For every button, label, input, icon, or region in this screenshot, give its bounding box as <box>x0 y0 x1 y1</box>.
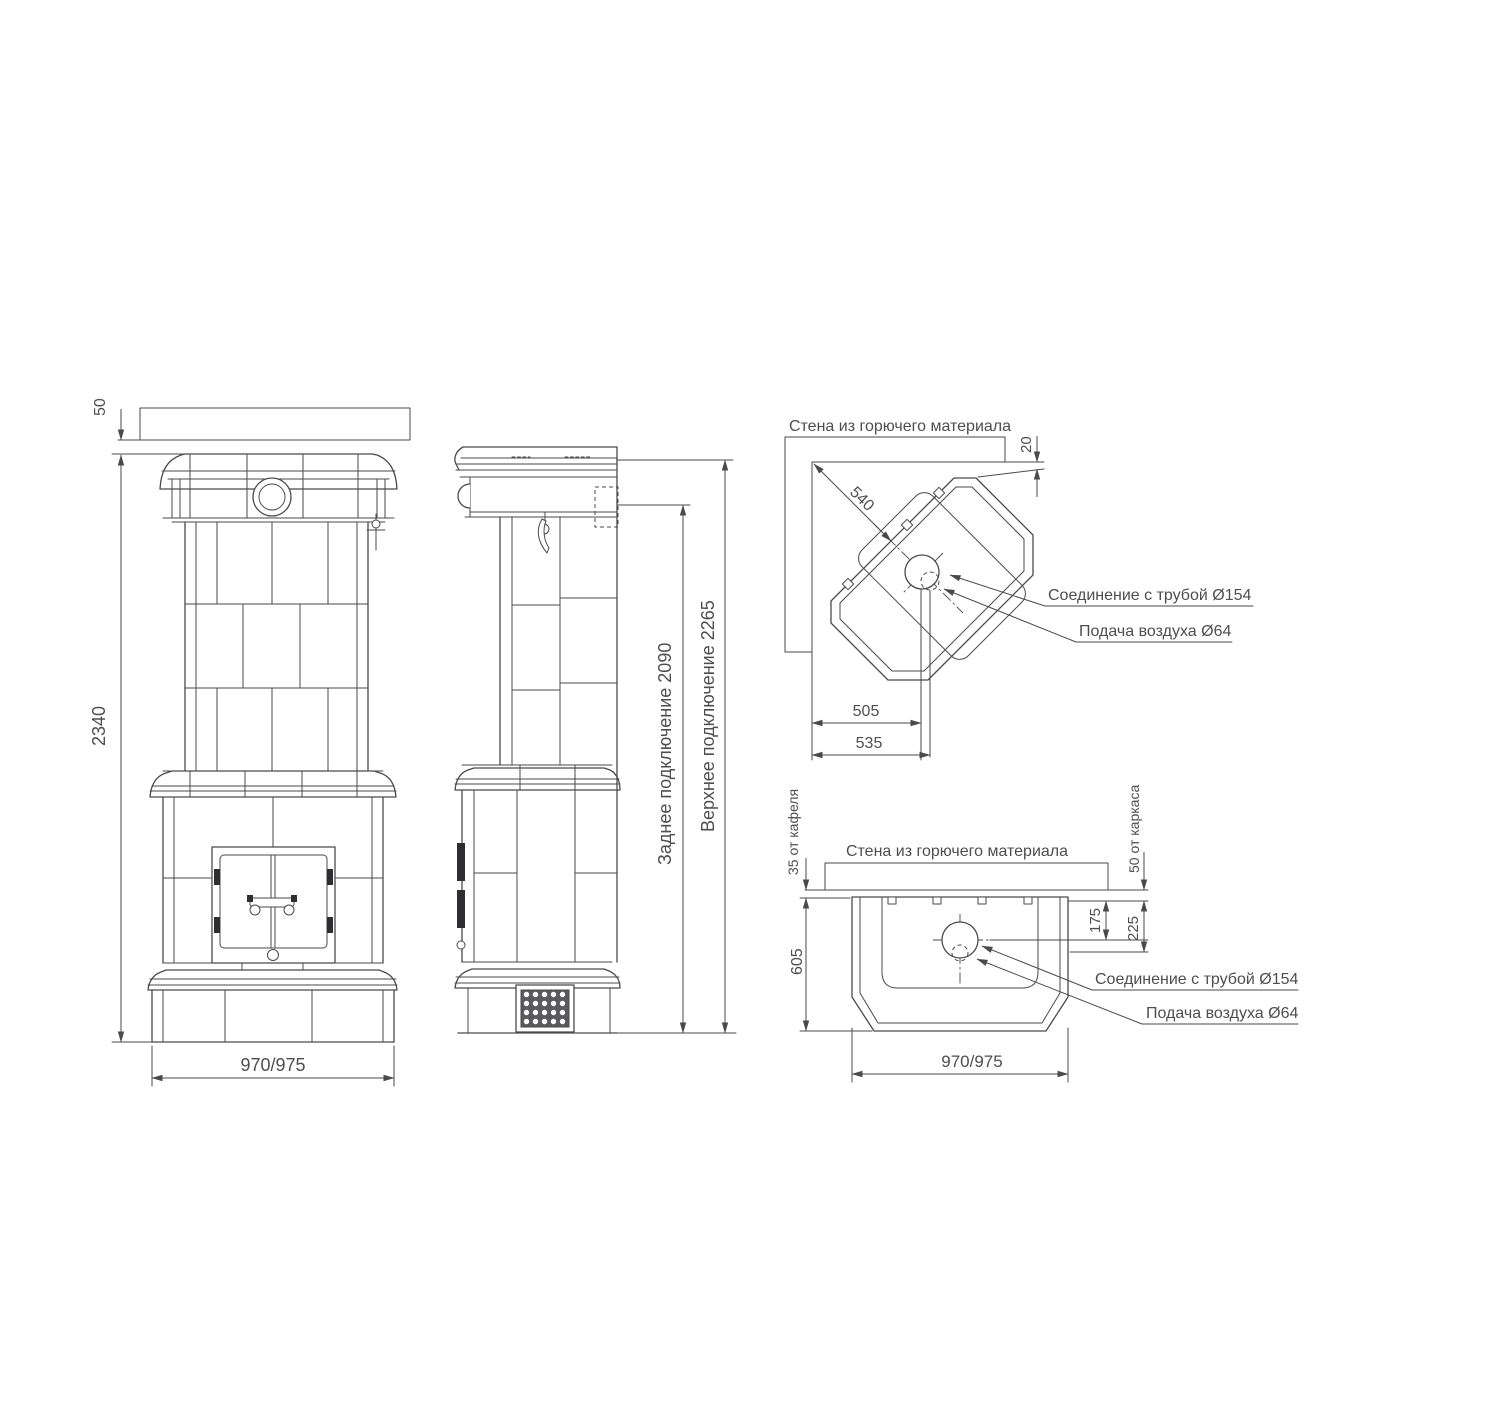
side-door-hinge <box>457 843 465 881</box>
dim-tile-gap-label: 35 от кафеля <box>785 789 801 875</box>
dim-front-width-label: 970/975 <box>240 1055 305 1075</box>
dim-top-connection-label: Верхнее подключение 2265 <box>698 600 718 832</box>
dim-flue-offset-label: 175 <box>1087 908 1104 933</box>
dim-plan-width-label: 970/975 <box>941 1052 1002 1071</box>
technical-drawing-sheet: 50 2340 <box>0 0 1500 1427</box>
door-handle-pin-right <box>291 895 297 902</box>
sheet-background <box>0 0 1500 1427</box>
front-firebox-cornice <box>150 771 396 797</box>
plan-wall-label: Стена из горючего материала <box>846 843 1068 860</box>
stove-installation-drawing: 50 2340 <box>0 0 1500 1427</box>
dim-depth-label: 605 <box>789 948 806 975</box>
dim-frame-gap-label: 50 от каркаса <box>1126 785 1142 873</box>
frame-bracket <box>978 897 986 904</box>
dim-ceiling-gap-label: 50 <box>92 398 109 416</box>
plan-stove-footprint <box>852 897 1068 1031</box>
side-door-hinge <box>457 890 465 928</box>
corner-wall-label: Стена из горючего материала <box>789 418 1011 435</box>
dim-total-height-label: 2340 <box>89 706 109 746</box>
front-fire-door <box>212 847 335 963</box>
plan-air-label: Подача воздуха Ø64 <box>1146 1005 1298 1022</box>
plan-flue-label: Соединение с трубой Ø154 <box>1095 971 1298 988</box>
dim-wall-gap-label: 20 <box>1018 436 1035 453</box>
frame-bracket <box>933 897 941 904</box>
dim-to-flue-axis-label: 505 <box>853 703 880 720</box>
door-knob <box>268 950 279 961</box>
dim-air-offset-label: 225 <box>1125 916 1142 941</box>
side-air-grille <box>521 990 569 1027</box>
plan-flue-pipe <box>942 922 978 958</box>
frame-bracket <box>1024 897 1032 904</box>
dim-to-air-axis-label: 535 <box>856 735 883 752</box>
door-hinge <box>214 917 220 933</box>
dim-rear-connection-label: Заднее подключение 2090 <box>655 643 675 865</box>
side-firebox-cornice <box>455 765 620 790</box>
door-hinge <box>327 917 333 933</box>
corner-flue-label: Соединение с трубой Ø154 <box>1048 587 1251 604</box>
door-hinge <box>327 869 333 885</box>
door-handle-pin-left <box>247 895 253 902</box>
door-hinge <box>214 869 220 885</box>
frame-bracket <box>888 897 896 904</box>
corner-air-label: Подача воздуха Ø64 <box>1079 623 1231 640</box>
side-door-knob <box>457 941 465 949</box>
